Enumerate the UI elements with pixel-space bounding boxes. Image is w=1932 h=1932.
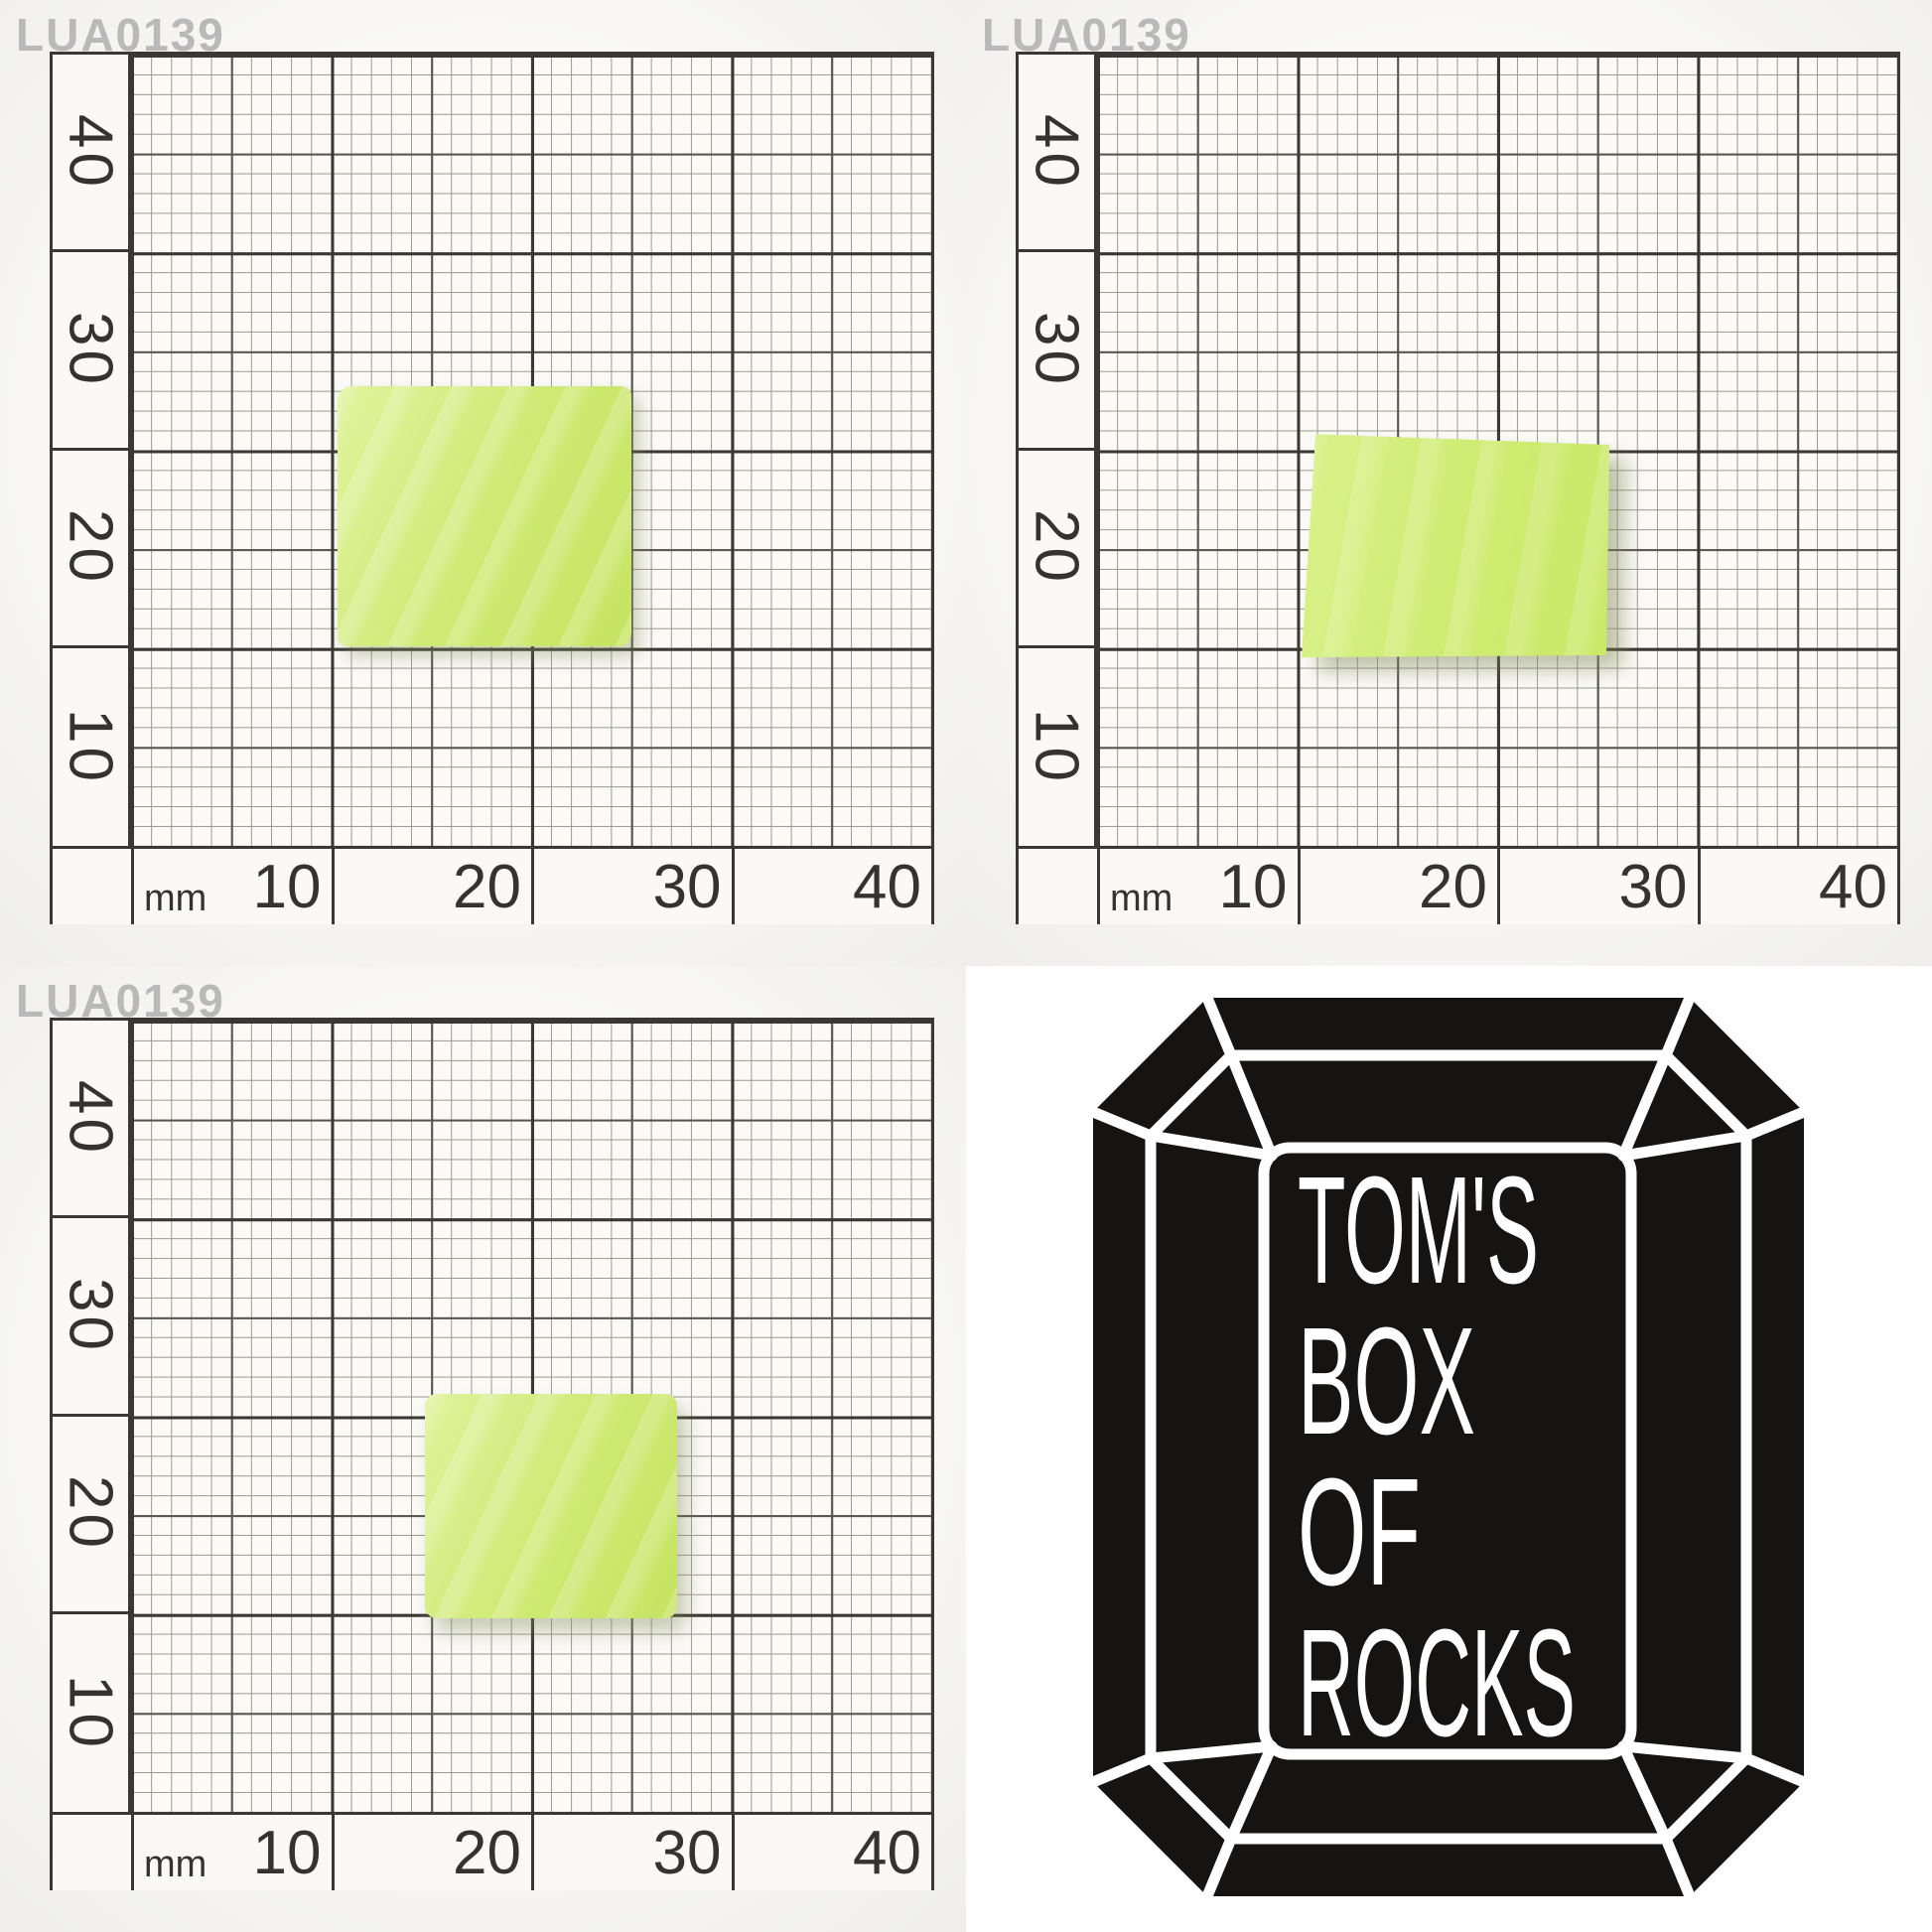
brand-logo-panel: TOM'S BOX OF ROCKS: [966, 966, 1932, 1932]
y-axis-tick: 20: [1019, 451, 1094, 648]
x-axis-corner-cell: [1019, 849, 1097, 924]
x-axis-tick: mm10: [1097, 849, 1298, 924]
wordmark-line: ROCKS: [1298, 1597, 1576, 1768]
x-axis-corner-cell: [53, 1815, 131, 1890]
y-axis-tick: 10: [53, 648, 128, 846]
y-axis-tick: 30: [53, 1218, 128, 1416]
x-axis-corner-cell: [53, 849, 131, 924]
photo-panel-top-view: LUA0139 40 30 20 10 mm10 20 30 40: [0, 0, 966, 966]
y-axis-tick: 10: [53, 1614, 128, 1812]
wordmark-line: BOX: [1298, 1296, 1475, 1466]
y-axis-tick: 40: [53, 55, 128, 252]
mm-grid: [131, 55, 931, 846]
x-axis-tick: mm10: [131, 849, 332, 924]
x-axis-tick: 30: [531, 1815, 732, 1890]
x-axis: mm10 20 30 40: [1019, 846, 1897, 924]
unit-label: mm: [144, 1844, 207, 1886]
x-axis-tick: 40: [1698, 849, 1898, 924]
x-axis-tick: 20: [332, 849, 532, 924]
unit-label: mm: [1110, 878, 1173, 920]
mm-grid: [131, 1021, 931, 1812]
specimen-photo: [1302, 432, 1611, 658]
y-axis-tick: 20: [53, 1417, 128, 1614]
y-axis: 40 30 20 10: [53, 1021, 131, 1812]
specimen-photo: [338, 386, 631, 646]
y-axis: 40 30 20 10: [1019, 55, 1097, 846]
x-axis-tick: 40: [732, 1815, 932, 1890]
y-axis-tick: 40: [53, 1021, 128, 1218]
photo-panel-bottom-view: LUA0139 40 30 20 10 mm10 20 30 40: [0, 966, 966, 1932]
x-axis-tick: 30: [531, 849, 732, 924]
y-axis-tick: 30: [1019, 252, 1094, 450]
x-axis-tick: 20: [332, 1815, 532, 1890]
x-axis: mm10 20 30 40: [53, 1812, 931, 1890]
x-axis-tick: mm10: [131, 1815, 332, 1890]
wordmark-line: TOM'S: [1298, 1145, 1539, 1315]
y-axis-tick: 20: [53, 451, 128, 648]
graph-paper: 40 30 20 10 mm10 20 30 40: [50, 52, 934, 924]
specimen-photo: [425, 1394, 677, 1618]
x-axis-tick: 20: [1298, 849, 1498, 924]
x-axis: mm10 20 30 40: [53, 846, 931, 924]
graph-paper: 40 30 20 10 mm10 20 30 40: [1016, 52, 1900, 924]
y-axis-tick: 40: [1019, 55, 1094, 252]
x-axis-tick: 30: [1497, 849, 1698, 924]
unit-label: mm: [144, 878, 207, 920]
x-axis-tick: 40: [732, 849, 932, 924]
product-photo-collage: LUA0139 40 30 20 10 mm10 20 30 40: [0, 0, 1932, 1932]
emerald-cut-gem-icon: TOM'S BOX OF ROCKS: [966, 966, 1932, 1932]
photo-panel-side-view: LUA0139 40 30 20 10 mm10 20 30 40: [966, 0, 1932, 966]
graph-paper: 40 30 20 10 mm10 20 30 40: [50, 1018, 934, 1890]
wordmark-line: OF: [1298, 1447, 1421, 1617]
mm-grid: [1097, 55, 1897, 846]
y-axis: 40 30 20 10: [53, 55, 131, 846]
y-axis-tick: 30: [53, 252, 128, 450]
y-axis-tick: 10: [1019, 648, 1094, 846]
